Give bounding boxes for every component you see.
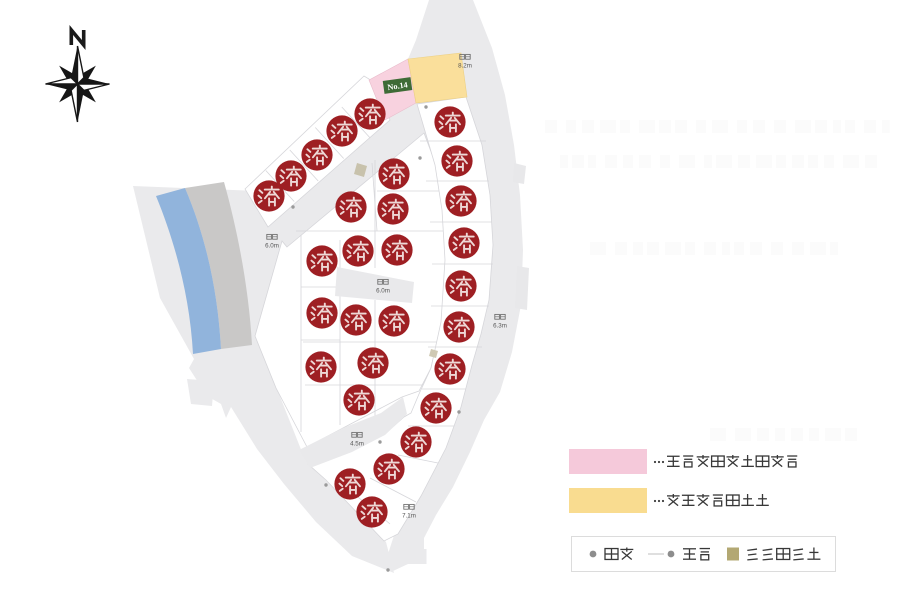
svg-text:4.5m: 4.5m [350, 441, 364, 448]
svg-text:8.2m: 8.2m [458, 63, 472, 70]
svg-text:6.3m: 6.3m [493, 323, 507, 330]
svg-text:7.1m: 7.1m [402, 513, 416, 520]
svg-text:6.0m: 6.0m [265, 243, 279, 250]
svg-text:6.0m: 6.0m [376, 288, 390, 295]
